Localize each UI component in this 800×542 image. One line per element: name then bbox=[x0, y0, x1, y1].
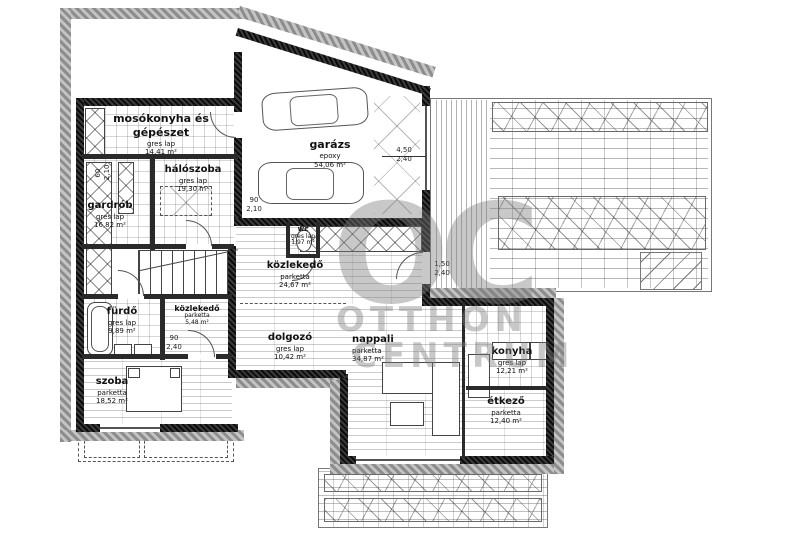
room-material: gres lap bbox=[72, 213, 148, 222]
room-name: gardrób bbox=[72, 200, 148, 213]
room-label-konyha: konyha gres lap 12,21 m² bbox=[482, 346, 542, 376]
room-name: konyha bbox=[482, 346, 542, 359]
outline-dolgozo-bottom bbox=[236, 378, 340, 388]
room-name: garázs bbox=[290, 138, 370, 152]
wall-mosokonyha-top bbox=[76, 98, 242, 106]
room-label-kozlekedo-central: közlekedő parketta 24,67 m² bbox=[250, 260, 340, 290]
room-name: étkező bbox=[476, 396, 536, 409]
room-name: mosókonyha és gépészet bbox=[95, 112, 227, 140]
wall-konyha-etkezo bbox=[466, 386, 546, 390]
room-label-mosokonyha: mosókonyha és gépészet gres lap 14,41 m² bbox=[95, 112, 227, 157]
room-material: gres lap bbox=[86, 319, 158, 328]
room-label-dolgozo: dolgozó gres lap 10,42 m² bbox=[250, 332, 330, 362]
room-area: 14,41 m² bbox=[95, 148, 227, 157]
dim-garage-opening: 4,50 2,40 bbox=[390, 146, 418, 164]
dim-wardrobe-niche: 60 2,10 bbox=[94, 166, 112, 180]
room-label-nappali: nappali parketta 34,87 m² bbox=[346, 334, 414, 364]
room-material: gres lap bbox=[250, 345, 330, 354]
terrace-bottom-speckle-1 bbox=[324, 474, 542, 492]
wall-hall-top bbox=[234, 218, 430, 226]
room-area: 54,06 m² bbox=[290, 161, 370, 170]
wall-right-outer bbox=[546, 298, 554, 464]
wall-nappali-konyha bbox=[462, 302, 465, 458]
room-label-szoba: szoba parketta 18,52 m² bbox=[80, 376, 144, 406]
car-top bbox=[261, 86, 369, 131]
room-area: 18,52 m² bbox=[80, 397, 144, 406]
room-label-furdo: fürdő gres lap 9,89 m² bbox=[86, 306, 158, 336]
room-name: nappali bbox=[352, 334, 414, 347]
sofa-vertical bbox=[432, 362, 460, 436]
wall-above-furdo bbox=[82, 294, 232, 299]
window-szoba-line bbox=[100, 427, 160, 429]
room-material: gres lap bbox=[482, 359, 542, 368]
dim-height: 2,40 bbox=[162, 343, 186, 352]
room-label-garazs: garázs epoxy 54,06 m² bbox=[290, 138, 370, 169]
dim-height: 2,10 bbox=[103, 166, 112, 180]
garage-door-leaf bbox=[425, 106, 427, 190]
outline-left bbox=[60, 8, 71, 442]
room-label-gardrob: gardrób gres lap 16,82 m² bbox=[72, 200, 148, 230]
room-material: parketta bbox=[80, 389, 144, 398]
room-name: szoba bbox=[80, 376, 144, 389]
floorplan-canvas: mosókonyha és gépészet gres lap 14,41 m²… bbox=[0, 0, 800, 542]
szoba-pillow-2 bbox=[170, 368, 180, 378]
dim-height: 2,40 bbox=[428, 269, 456, 278]
dim-width: 90 bbox=[162, 334, 186, 343]
room-name: közlekedő bbox=[250, 260, 340, 273]
room-area: 12,21 m² bbox=[482, 367, 542, 376]
room-material: parketta bbox=[352, 347, 414, 356]
room-name: fürdő bbox=[86, 306, 158, 319]
room-label-wc: wc gres lap 1,97 m² bbox=[288, 226, 318, 247]
dim-hall-terrace-door: 1,50 2,40 bbox=[428, 260, 456, 278]
dim-bath-door: 90 2,40 bbox=[162, 334, 186, 352]
room-name: dolgozó bbox=[250, 332, 330, 345]
dim-height: 2,40 bbox=[390, 155, 418, 164]
staircase bbox=[138, 250, 232, 297]
room-area: 24,67 m² bbox=[250, 281, 340, 290]
room-area: 12,40 m² bbox=[476, 417, 536, 426]
room-material: epoxy bbox=[290, 152, 370, 161]
outline-terrace-join bbox=[428, 288, 556, 298]
room-area: 16,82 m² bbox=[72, 221, 148, 230]
wall-konyha-top bbox=[422, 298, 554, 306]
room-area: 10,42 m² bbox=[250, 353, 330, 362]
wall-nappali-left bbox=[340, 374, 348, 464]
room-area: 1,97 m² bbox=[288, 240, 318, 247]
coffee-table bbox=[390, 402, 424, 426]
room-label-etkezo: étkező parketta 12,40 m² bbox=[476, 396, 536, 426]
room-label-haloszoba: hálószoba gres lap 19,30 m² bbox=[150, 164, 236, 194]
terrace-bottom-speckle-2 bbox=[324, 498, 542, 522]
terrace-ramp-marks bbox=[640, 252, 702, 290]
dim-width: 90 bbox=[242, 196, 266, 205]
window-nappali-line bbox=[356, 459, 460, 461]
room-area: 19,30 m² bbox=[150, 185, 236, 194]
room-material: parketta bbox=[250, 273, 340, 282]
room-area: 5,48 m² bbox=[164, 320, 230, 327]
wall-dolgozo-bottom bbox=[234, 370, 346, 378]
hall-dashed-boundary bbox=[240, 303, 346, 304]
dim-width: 1,50 bbox=[428, 260, 456, 269]
outline-bottom-living bbox=[330, 464, 556, 474]
room-area: 9,89 m² bbox=[86, 327, 158, 336]
room-area: 34,87 m² bbox=[352, 355, 414, 364]
outline-right-living bbox=[554, 298, 564, 474]
dim-width: 60 bbox=[94, 166, 103, 180]
room-label-kozlekedo-small: közlekedő parketta 5,48 m² bbox=[164, 304, 230, 327]
dim-bedroom-door: 90 2,10 bbox=[242, 196, 266, 214]
room-material: gres lap bbox=[95, 140, 227, 149]
planting-strip-middle bbox=[498, 196, 706, 250]
room-material: gres lap bbox=[150, 177, 236, 186]
outline-top bbox=[60, 8, 244, 19]
dim-height: 2,10 bbox=[242, 205, 266, 214]
outline-nappali-left bbox=[330, 380, 340, 468]
room-name: hálószoba bbox=[150, 164, 236, 177]
dim-width: 4,50 bbox=[390, 146, 418, 155]
planting-strip-top bbox=[492, 102, 708, 132]
room-material: parketta bbox=[476, 409, 536, 418]
wall-garage-left bbox=[234, 52, 242, 224]
